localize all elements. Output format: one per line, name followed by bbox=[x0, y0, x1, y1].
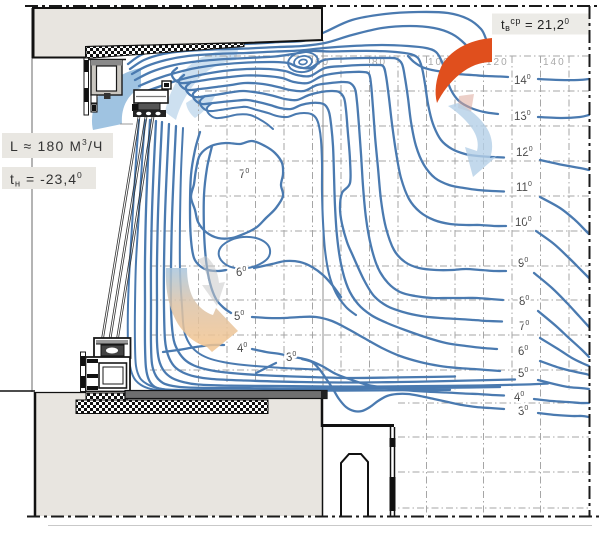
svg-text:L ≈ 180 М3/Ч: L ≈ 180 М3/Ч bbox=[10, 137, 104, 154]
svg-text:tн = -23,40: tн = -23,40 bbox=[10, 170, 83, 190]
svg-text:140: 140 bbox=[543, 57, 566, 68]
